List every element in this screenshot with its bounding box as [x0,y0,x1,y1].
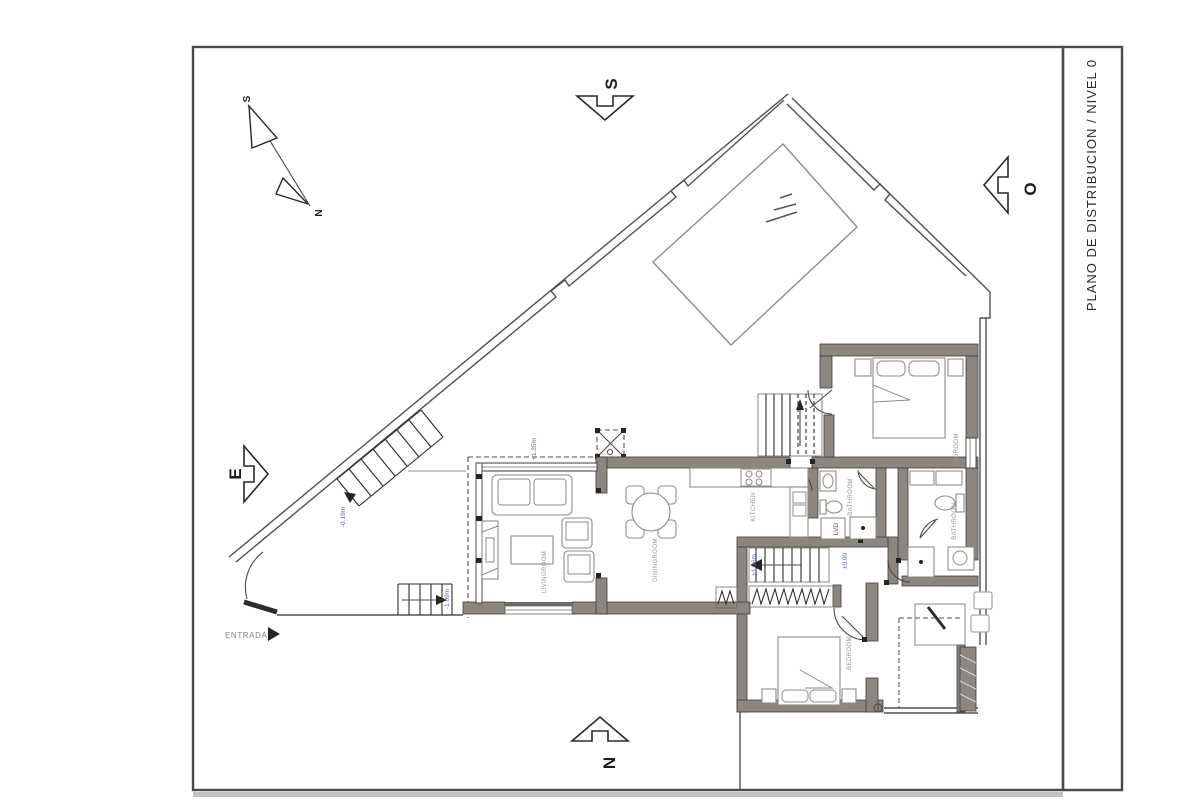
level-terrace: +1.35m [531,438,538,460]
rose-letter-n: N [314,209,325,216]
entrance-arrow-icon [268,627,280,641]
kitchen-fixtures [690,468,808,537]
bedroom2-furniture [762,637,856,705]
ramp-arrow-icon [344,492,356,503]
label-bathroom2: BATHROOM [952,502,958,539]
label-kitchen: KITCHEN [751,492,757,521]
arrow-west-icon [984,157,1008,213]
entrance-label: ENTRADA [225,631,267,640]
arrow-east-icon [244,446,268,502]
letter-north: N [600,757,619,769]
bathroom2-fixtures [908,471,974,577]
sheet-title: PLANO DE DISTRIBUCION / NIVEL 0 [1084,59,1099,311]
rose-letter-s: S [242,95,253,102]
level-ground: ±0.00 [842,553,849,570]
label-bedroom2: BEDROOM [847,636,853,670]
label-diningroom: DININGROOM [653,538,659,582]
bedroom1-furniture [855,358,963,438]
letter-west: O [1021,182,1040,195]
drawing-frame [193,47,1122,797]
patio-details [874,592,992,712]
label-bedroom1: BEDROOM [954,433,960,467]
level-stair-up: +1.36m [751,554,758,576]
entrance-gate [244,552,280,641]
letter-east: E [226,468,245,479]
planter [971,615,989,632]
arrow-north-icon [572,717,628,741]
chimney [595,428,626,459]
floorplan-svg: PLANO DE DISTRIBUCION / NIVEL 0 S N S E … [0,0,1200,812]
arrow-south-icon [577,96,633,120]
floorplan-page: PLANO DE DISTRIBUCION / NIVEL 0 S N S E … [0,0,1200,812]
main-stair [749,548,829,582]
dining-furniture [626,486,676,538]
level-ramp: -0.19m [340,507,347,527]
label-laundry: LVD [833,523,840,535]
label-livingroom: LIVINGROOM [542,551,548,593]
level-entry-steps: -1.09m [444,589,451,609]
label-bathroom1: BATHROOM [848,478,854,515]
livingroom-furniture [482,475,594,582]
north-rose: S N [242,95,325,216]
pool [653,144,857,345]
letter-south: S [602,78,621,89]
planter [974,592,992,609]
